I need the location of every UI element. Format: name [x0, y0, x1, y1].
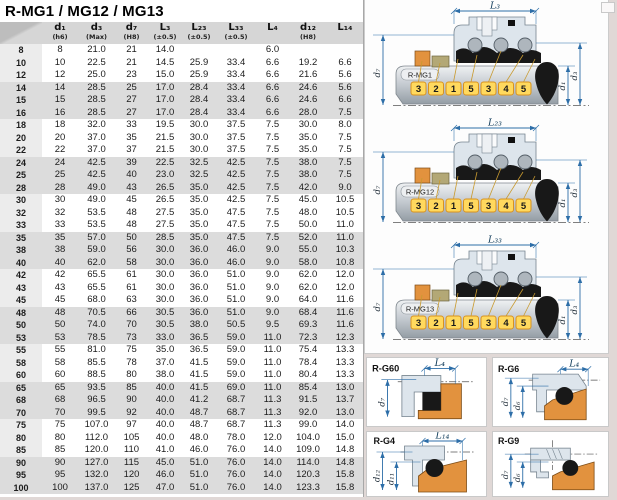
row-size-cell: 43: [0, 282, 42, 295]
table-cell: [327, 44, 363, 57]
dimension-label: d₇: [500, 470, 510, 479]
column-header: d₃(Max): [78, 22, 115, 44]
table-cell: 16: [42, 107, 78, 120]
row-size-cell: 18: [0, 119, 42, 132]
table-cell: 30.5: [148, 319, 182, 332]
table-cell: 30.0: [182, 132, 216, 145]
row-size-cell: 25: [0, 169, 42, 182]
table-cell: 64.0: [289, 294, 327, 307]
diagram-r-g4: R-G4 L₁₄ d₁₂ d₁₁: [367, 432, 486, 496]
row-size-cell: 33: [0, 219, 42, 232]
column-label: L₃: [148, 23, 182, 34]
table-row: 141428.52517.028.433.46.624.65.6: [0, 82, 363, 95]
table-cell: 68.7: [216, 394, 256, 407]
table-cell: 69.3: [289, 319, 327, 332]
diagram-r-mg1: R-MG1 3 2 1 5 3 4 5 L₃ d₇ d₁ d₃: [365, 1, 608, 118]
table-cell: 10.8: [327, 257, 363, 270]
dimension-label: L₄: [568, 359, 579, 370]
table-cell: 21.0: [78, 44, 115, 57]
table-cell: 15.0: [148, 69, 182, 82]
table-cell: 17.0: [148, 107, 182, 120]
table-cell: 6.6: [256, 94, 289, 107]
table-cell: 24.6: [289, 82, 327, 95]
table-cell: 5.6: [327, 69, 363, 82]
column-header: L₃(±0.5): [148, 22, 182, 44]
table-cell: 50.0: [289, 219, 327, 232]
table-cell: 30.5: [148, 307, 182, 320]
table-cell: 73: [115, 332, 148, 345]
table-cell: 19.2: [289, 57, 327, 70]
table-row: 100100137.012547.051.076.014.0123.315.8: [0, 482, 363, 495]
table-cell: 76.0: [216, 482, 256, 495]
table-body: 8821.02114.06.0101022.52114.525.933.46.6…: [0, 44, 363, 494]
table-cell: 68.0: [78, 294, 115, 307]
table-cell: 10.5: [327, 207, 363, 220]
table-cell: 35.0: [289, 144, 327, 157]
table-cell: 27.5: [148, 219, 182, 232]
table-cell: 47.5: [216, 219, 256, 232]
table-row: 151528.52717.028.433.46.624.66.6: [0, 94, 363, 107]
table-cell: 33.4: [216, 107, 256, 120]
table-cell: 70: [42, 407, 78, 420]
row-size-cell: 45: [0, 294, 42, 307]
callout-number: 3: [416, 84, 421, 95]
table-cell: 11.0: [256, 369, 289, 382]
table-cell: 65.5: [78, 282, 115, 295]
table-cell: 58: [42, 357, 78, 370]
table-cell: 70: [115, 319, 148, 332]
table-row: 555581.07535.036.559.011.075.413.3: [0, 344, 363, 357]
table-cell: 60: [42, 369, 78, 382]
table-cell: 12.0: [327, 269, 363, 282]
table-cell: 33.4: [216, 94, 256, 107]
table-cell: 53: [42, 332, 78, 345]
dimension-label: L₃₃: [487, 235, 502, 246]
table-cell: 48.0: [182, 432, 216, 445]
table-cell: 21.5: [148, 132, 182, 145]
table-cell: 55: [42, 344, 78, 357]
table-cell: 76.0: [216, 444, 256, 457]
table-row: 323253.54827.535.047.57.548.010.5: [0, 207, 363, 220]
row-size-cell: 58: [0, 357, 42, 370]
table-cell: 11.3: [256, 407, 289, 420]
table-cell: 48.7: [182, 407, 216, 420]
table-header: d₁(h6)d₃(Max)d₇(H8)L₃(±0.5)L₂₃(±0.5)L₃₃(…: [0, 22, 363, 44]
table-cell: 120: [115, 469, 148, 482]
table-cell: 59.0: [78, 244, 115, 257]
diagram-box-r-g60: R-G60 L₄ d₇: [366, 357, 487, 427]
column-tolerance: (±0.5): [182, 34, 216, 41]
table-row: 454568.06330.036.051.09.064.011.6: [0, 294, 363, 307]
table-cell: 37.5: [216, 132, 256, 145]
table-row: 353557.05028.535.047.57.552.011.0: [0, 232, 363, 245]
table-cell: 41.5: [182, 369, 216, 382]
table-cell: 42: [42, 269, 78, 282]
table-cell: 11.0: [327, 219, 363, 232]
table-cell: 36.5: [182, 344, 216, 357]
table-cell: 14.0: [256, 469, 289, 482]
table-cell: 7.5: [256, 169, 289, 182]
table-cell: 25.0: [78, 69, 115, 82]
table-cell: 43: [115, 182, 148, 195]
table-row: 161628.52717.028.433.46.628.07.5: [0, 107, 363, 120]
table-row: 424265.56130.036.051.09.062.012.0: [0, 269, 363, 282]
row-size-cell: 85: [0, 444, 42, 457]
table-cell: 42.5: [216, 169, 256, 182]
table-cell: 7.5: [256, 219, 289, 232]
table-cell: 35.0: [182, 194, 216, 207]
table-cell: 11.0: [256, 357, 289, 370]
column-label: d₃: [78, 23, 115, 34]
table-cell: 13.3: [327, 344, 363, 357]
table-row: 8585120.011041.046.076.014.0109.014.8: [0, 444, 363, 457]
table-cell: 22.5: [78, 57, 115, 70]
table-row: 202037.03521.530.037.57.535.07.5: [0, 132, 363, 145]
row-size-cell: 90: [0, 457, 42, 470]
table-cell: 26.5: [148, 182, 182, 195]
table-row: 222237.03721.530.037.57.535.07.5: [0, 144, 363, 157]
table-cell: 132.0: [78, 469, 115, 482]
table-cell: 39: [115, 157, 148, 170]
drive-collar: [415, 51, 430, 66]
table-row: 303049.04526.535.042.57.545.010.5: [0, 194, 363, 207]
table-cell: 47.5: [216, 232, 256, 245]
dimension-label: d₇: [377, 397, 387, 407]
table-cell: 45: [115, 194, 148, 207]
table-cell: 27: [115, 94, 148, 107]
table-row: 8080112.010540.048.078.012.0104.015.0: [0, 432, 363, 445]
row-size-cell: 22: [0, 144, 42, 157]
table-cell: 50.5: [216, 319, 256, 332]
diagram-label: R-G9: [498, 436, 519, 446]
table-cell: 75: [42, 419, 78, 432]
table-cell: 35.0: [182, 182, 216, 195]
table-cell: 21: [115, 57, 148, 70]
table-cell: 85: [42, 444, 78, 457]
table-cell: 33.0: [148, 332, 182, 345]
table-cell: 9.0: [256, 257, 289, 270]
table-cell: 42.0: [289, 182, 327, 195]
table-cell: 24: [42, 157, 78, 170]
table-cell: 12.0: [256, 432, 289, 445]
diagram-r-mg12: R-MG12 3 2 1 5 3 4 5 L₂₃ d₇ d₁ d₃: [365, 118, 608, 235]
table-cell: 68.4: [289, 307, 327, 320]
table-cell: 48: [42, 307, 78, 320]
table-cell: 14.0: [256, 457, 289, 470]
table-cell: 7.5: [256, 144, 289, 157]
table-cell: 8: [42, 44, 78, 57]
dimension-label: L₄: [434, 358, 445, 369]
table-cell: 10: [42, 57, 78, 70]
dimension-label: d₁₂: [373, 469, 383, 482]
table-cell: 21: [115, 44, 148, 57]
table-cell: 9.0: [256, 269, 289, 282]
table-cell: 37.5: [216, 144, 256, 157]
table-cell: 6.6: [256, 69, 289, 82]
callout-number: 4: [503, 318, 509, 329]
column-header: d₁₂(H8): [289, 22, 327, 44]
row-size-cell: 40: [0, 257, 42, 270]
table-cell: 85.4: [289, 382, 327, 395]
table-cell: 11.0: [256, 344, 289, 357]
callout-number: 2: [433, 201, 438, 212]
table-cell: 109.0: [289, 444, 327, 457]
table-cell: 90: [115, 394, 148, 407]
table-cell: 75: [115, 344, 148, 357]
table-cell: 15.0: [327, 432, 363, 445]
column-label: d₇: [115, 23, 148, 34]
table-cell: 127.0: [78, 457, 115, 470]
table-cell: 18: [42, 119, 78, 132]
table-cell: 10.5: [327, 194, 363, 207]
table-row: 333353.54827.535.047.57.550.011.0: [0, 219, 363, 232]
dimension-label: d₇: [373, 302, 383, 311]
table-cell: 9.0: [256, 307, 289, 320]
table-cell: 45: [42, 294, 78, 307]
table-cell: 11.6: [327, 307, 363, 320]
callout-number: 3: [486, 201, 491, 212]
rubber-seat: [422, 392, 440, 410]
column-tolerance: (H8): [115, 34, 148, 41]
table-cell: 11.3: [256, 394, 289, 407]
table-cell: 104.0: [289, 432, 327, 445]
diagram-box-r-g4: R-G4 L₁₄ d₁₂ d₁₁: [366, 431, 487, 497]
table-cell: 46.0: [216, 244, 256, 257]
table-cell: 41.5: [182, 357, 216, 370]
table-row: 606088.58038.041.559.011.080.413.3: [0, 369, 363, 382]
row-size-cell: 28: [0, 182, 42, 195]
table-cell: 68.7: [216, 419, 256, 432]
dimension-label: d₆: [512, 401, 522, 410]
table-cell: 36.0: [182, 244, 216, 257]
table-cell: 33.4: [216, 69, 256, 82]
table-cell: 51.0: [216, 307, 256, 320]
table-cell: 28.5: [148, 232, 182, 245]
table-cell: 42.5: [216, 194, 256, 207]
table-cell: 78.4: [289, 357, 327, 370]
table-cell: 11.0: [327, 232, 363, 245]
table-row: 707099.59240.048.768.711.392.013.0: [0, 407, 363, 420]
table-cell: 92: [115, 407, 148, 420]
table-cell: 80: [115, 369, 148, 382]
table-cell: 9.0: [256, 282, 289, 295]
table-cell: 40: [115, 169, 148, 182]
table-cell: 6.6: [256, 57, 289, 70]
table-cell: 120.3: [289, 469, 327, 482]
table-cell: 35: [42, 232, 78, 245]
table-cell: 12.0: [327, 282, 363, 295]
table-cell: 59.0: [216, 344, 256, 357]
row-size-cell: 70: [0, 407, 42, 420]
table-cell: 50: [115, 232, 148, 245]
table-row: 101022.52114.525.933.46.619.26.6: [0, 57, 363, 70]
table-cell: 37: [115, 144, 148, 157]
table-cell: 58.0: [289, 257, 327, 270]
table-cell: 49.0: [78, 194, 115, 207]
table-cell: 62.0: [289, 269, 327, 282]
table-cell: 28.5: [78, 94, 115, 107]
table-cell: 9.0: [327, 182, 363, 195]
dimension-label: L₃: [489, 1, 500, 12]
table-cell: 46.0: [148, 469, 182, 482]
spring-coil: [468, 38, 482, 52]
table-cell: 33.4: [216, 82, 256, 95]
table-cell: 85: [115, 382, 148, 395]
table-cell: 46.0: [216, 257, 256, 270]
table-cell: 28: [42, 182, 78, 195]
table-cell: 14.8: [327, 444, 363, 457]
table-cell: 45.0: [289, 194, 327, 207]
callout-number: 5: [521, 201, 527, 212]
table-cell: 35.0: [182, 219, 216, 232]
table-cell: 120.0: [78, 444, 115, 457]
table-row: 434365.56130.036.051.09.062.012.0: [0, 282, 363, 295]
dimension-label: L₁₄: [435, 432, 450, 442]
spring-coil: [518, 272, 532, 286]
table-cell: 25.9: [182, 57, 216, 70]
column-label: L₄: [256, 23, 289, 34]
row-size-cell: 100: [0, 482, 42, 495]
table-row: 8821.02114.06.0: [0, 44, 363, 57]
table-cell: 7.5: [256, 119, 289, 132]
callout-number: 5: [468, 318, 474, 329]
column-header: L₃₃(±0.5): [216, 22, 256, 44]
dimension-label: d₃: [570, 305, 580, 314]
table-cell: 30.0: [148, 257, 182, 270]
table-cell: [182, 44, 216, 57]
table-cell: 72.3: [289, 332, 327, 345]
table-cell: 21.6: [289, 69, 327, 82]
table-cell: 33: [42, 219, 78, 232]
table-cell: 30.0: [289, 119, 327, 132]
table-cell: 6.6: [327, 57, 363, 70]
table-cell: 28.4: [182, 82, 216, 95]
table-cell: 58: [115, 257, 148, 270]
table-cell: 37.5: [216, 119, 256, 132]
callout-number: 5: [521, 84, 527, 95]
table-cell: 40.0: [148, 419, 182, 432]
table-cell: 23: [115, 69, 148, 82]
spring-coil: [468, 155, 482, 169]
callout-number: 5: [521, 318, 527, 329]
table-cell: 85.5: [78, 357, 115, 370]
table-cell: 17.0: [148, 94, 182, 107]
dimension-label: d₇: [373, 68, 383, 77]
table-cell: 107.0: [78, 419, 115, 432]
row-size-cell: 10: [0, 57, 42, 70]
dimension-label: d₃: [570, 71, 580, 80]
table-cell: 49.0: [78, 182, 115, 195]
table-cell: 91.5: [289, 394, 327, 407]
callout-number: 4: [503, 201, 509, 212]
callout-number: 5: [468, 84, 474, 95]
table-cell: 7.5: [256, 207, 289, 220]
table-cell: 93.5: [78, 382, 115, 395]
table-cell: 125: [115, 482, 148, 495]
row-size-cell: 15: [0, 94, 42, 107]
table-cell: 88.5: [78, 369, 115, 382]
table-cell: 59.0: [216, 332, 256, 345]
table-cell: 20: [42, 132, 78, 145]
column-header: L₂₃(±0.5): [182, 22, 216, 44]
dimension-label: d₁: [558, 82, 568, 91]
table-cell: 6.6: [256, 82, 289, 95]
row-size-cell: 24: [0, 157, 42, 170]
table-cell: 61: [115, 269, 148, 282]
table-cell: 51.0: [216, 269, 256, 282]
o-ring: [562, 460, 578, 476]
table-cell: 59.0: [216, 369, 256, 382]
seal-ring: [432, 56, 449, 67]
table-cell: 53.5: [78, 207, 115, 220]
gland-leg: [531, 460, 549, 478]
diagram-r-g6: R-G6 L₄ d₇ d₆: [493, 358, 608, 426]
table-cell: 12: [42, 69, 78, 82]
table-cell: [216, 44, 256, 57]
table-cell: 59.0: [216, 357, 256, 370]
table-cell: 30.0: [148, 282, 182, 295]
table-cell: 7.5: [327, 132, 363, 145]
row-size-cell: 12: [0, 69, 42, 82]
table-cell: 99.5: [78, 407, 115, 420]
table-cell: 7.5: [256, 182, 289, 195]
table-cell: 80.4: [289, 369, 327, 382]
table-row: 9595132.012046.051.076.014.0120.315.8: [0, 469, 363, 482]
table-cell: 32.5: [182, 157, 216, 170]
table-cell: 35.0: [289, 132, 327, 145]
table-cell: 48.7: [182, 419, 216, 432]
table-cell: 28.0: [289, 107, 327, 120]
table-row: 9090127.011545.051.076.014.0114.014.8: [0, 457, 363, 470]
column-header: [0, 22, 42, 44]
table-cell: 46.0: [182, 444, 216, 457]
table-cell: 7.5: [327, 107, 363, 120]
table-cell: 123.3: [289, 482, 327, 495]
table-cell: 62.0: [289, 282, 327, 295]
row-size-cell: 50: [0, 319, 42, 332]
callout-number: 3: [486, 318, 491, 329]
diagram-box-r-g6: R-G6 L₄ d₇ d₆: [492, 357, 609, 427]
table-cell: 12.3: [327, 332, 363, 345]
table-cell: 38.0: [289, 157, 327, 170]
column-label: L₂₃: [182, 23, 216, 34]
table-cell: 68.7: [216, 407, 256, 420]
table-cell: 62.0: [78, 257, 115, 270]
dimension-label: d₁: [558, 199, 568, 208]
header-row: d₁(h6)d₃(Max)d₇(H8)L₃(±0.5)L₂₃(±0.5)L₃₃(…: [0, 22, 363, 44]
diagram-label: R-G4: [374, 436, 396, 446]
table-cell: 32.5: [182, 169, 216, 182]
row-size-cell: 65: [0, 382, 42, 395]
table-cell: 8.0: [327, 119, 363, 132]
table-cell: 63: [115, 294, 148, 307]
table-cell: 95: [42, 469, 78, 482]
table-cell: 40.0: [148, 407, 182, 420]
table-cell: 40.0: [148, 432, 182, 445]
seal-ring: [432, 290, 449, 301]
row-size-cell: 48: [0, 307, 42, 320]
table-cell: 38: [42, 244, 78, 257]
o-ring: [426, 459, 444, 477]
table-cell: 90: [42, 457, 78, 470]
row-size-cell: 60: [0, 369, 42, 382]
table-cell: 11.6: [327, 294, 363, 307]
table-cell: 55.0: [289, 244, 327, 257]
table-cell: 35.0: [182, 232, 216, 245]
table-cell: 10.3: [327, 244, 363, 257]
table-cell: 137.0: [78, 482, 115, 495]
table-cell: 52.0: [289, 232, 327, 245]
